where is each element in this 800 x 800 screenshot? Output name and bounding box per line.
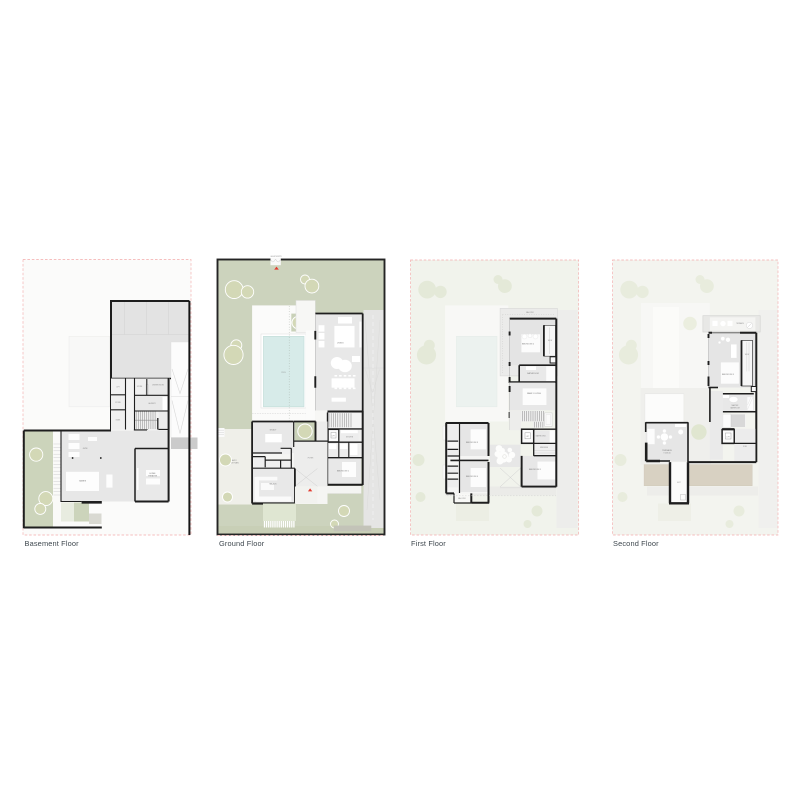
- svg-text:STORE: STORE: [115, 402, 120, 404]
- svg-text:LIVING: LIVING: [337, 343, 344, 345]
- svg-text:LIFT: LIFT: [332, 435, 335, 437]
- svg-text:THEATRE: THEATRE: [148, 474, 158, 477]
- svg-text:BEDROOM 5: BEDROOM 5: [722, 374, 735, 376]
- svg-text:BEDROOM 4: BEDROOM 4: [466, 476, 479, 478]
- svg-text:TERRACE: TERRACE: [662, 449, 672, 452]
- svg-text:STORE: STORE: [137, 386, 142, 388]
- svg-text:GYM: GYM: [83, 448, 88, 450]
- svg-text:BEDROOM 1: BEDROOM 1: [529, 469, 542, 471]
- svg-text:MAJLIS: MAJLIS: [269, 483, 277, 486]
- svg-text:Second Floor: Second Floor: [613, 539, 659, 548]
- svg-text:LIFT: LIFT: [116, 387, 119, 389]
- svg-text:DRESSING: DRESSING: [540, 447, 549, 449]
- svg-text:FOYER: FOYER: [308, 458, 314, 460]
- svg-text:DRIVER ROOM: DRIVER ROOM: [152, 385, 164, 387]
- svg-text:W.I.W: W.I.W: [548, 340, 553, 342]
- svg-text:STUDY: STUDY: [270, 430, 277, 432]
- svg-text:LIFT: LIFT: [727, 436, 730, 438]
- svg-text:POOL: POOL: [281, 372, 286, 374]
- svg-text:BEDROOM 1: BEDROOM 1: [337, 471, 350, 473]
- svg-text:BATHROOM: BATHROOM: [527, 372, 539, 375]
- svg-text:Ground Floor: Ground Floor: [219, 539, 265, 548]
- svg-text:EXIT: EXIT: [677, 482, 681, 484]
- svg-text:LIFT: LIFT: [526, 436, 529, 438]
- svg-text:Basement Floor: Basement Floor: [25, 539, 80, 548]
- svg-text:7.50X6.00: 7.50X6.00: [663, 452, 670, 454]
- svg-text:GAMES: GAMES: [79, 480, 87, 483]
- svg-text:GUEST ENTRY: GUEST ENTRY: [270, 256, 282, 258]
- svg-text:FAMILY LIVING: FAMILY LIVING: [527, 392, 541, 395]
- svg-text:BEDROOM 3: BEDROOM 3: [466, 442, 479, 444]
- svg-text:First Floor: First Floor: [411, 539, 446, 548]
- svg-text:BEDROOM 2: BEDROOM 2: [522, 344, 535, 346]
- svg-text:W.I.W: W.I.W: [745, 354, 750, 356]
- svg-text:KITCHEN: KITCHEN: [346, 437, 354, 439]
